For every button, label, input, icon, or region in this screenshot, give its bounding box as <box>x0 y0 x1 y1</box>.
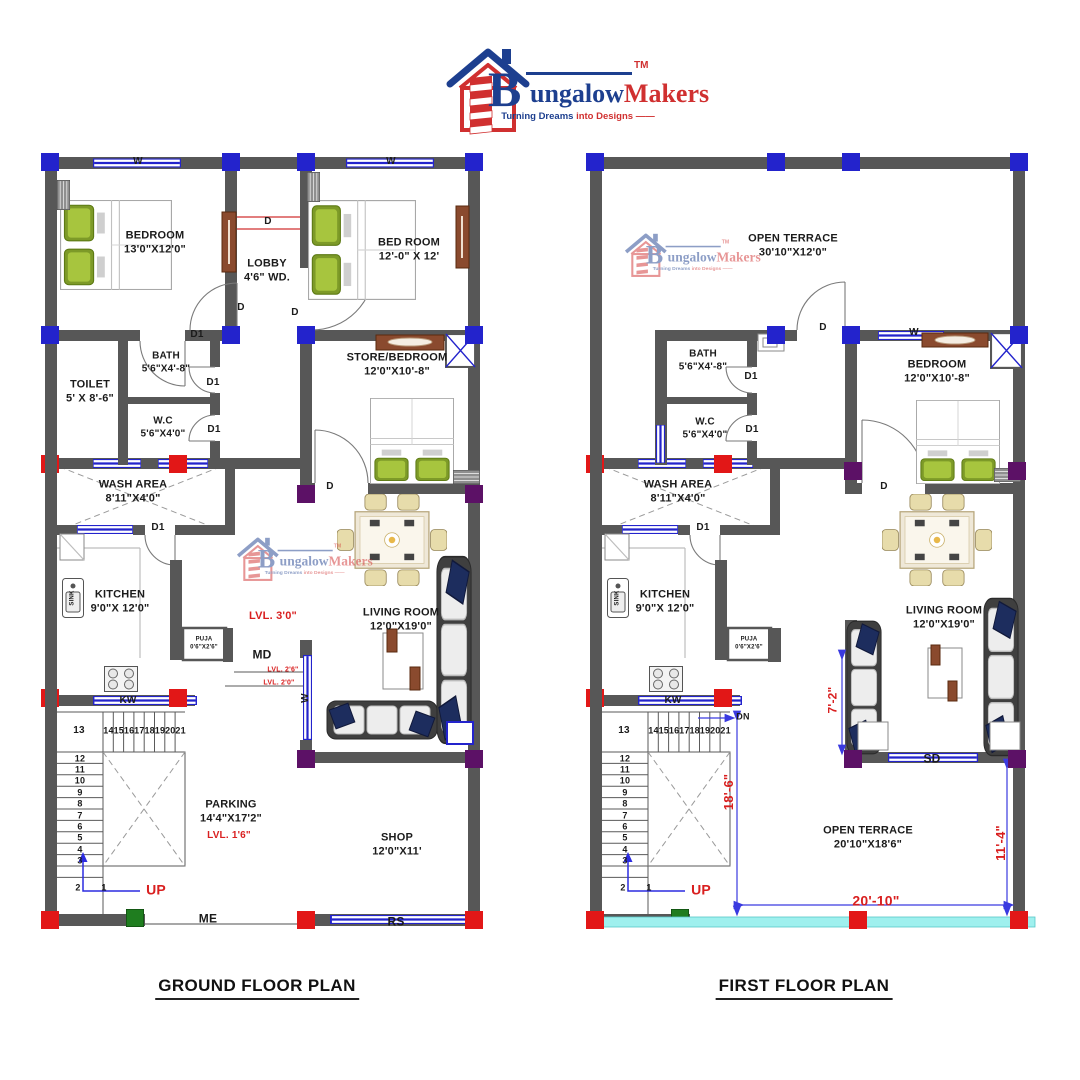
brand-logo: B TM ungalowMakers Turning Dreams into D… <box>446 34 661 139</box>
stair-number: 10 <box>75 776 85 787</box>
stair-number: 12 <box>75 753 85 764</box>
stair-number: 5 <box>622 833 627 844</box>
first-dining-set <box>882 494 992 586</box>
stair-number: 14 <box>103 725 113 736</box>
stair-number: 19 <box>155 725 165 736</box>
stair-number: 1 <box>101 882 106 893</box>
plan-label: MD <box>252 648 271 663</box>
ground-toilet-label: TOILET 5' X 8'-6" <box>66 378 114 406</box>
plan-label: KW <box>119 695 136 708</box>
brand-wordmark: ungalowMakers <box>530 79 709 109</box>
plan-label: UP <box>691 881 711 899</box>
plan-label: LVL. 2'0" <box>263 680 294 689</box>
ground-wash-label: WASH AREA 8'11"X4'0" <box>99 478 168 506</box>
floor-plan-page: WWBEDROOM 13'0"X12'0"DLOBBY 4'6" WD.BED … <box>0 0 1080 1080</box>
stair-number: 3 <box>77 855 82 866</box>
plan-label: D1 <box>206 377 219 390</box>
plan-label: D1 <box>696 522 709 535</box>
first-bath-label: BATH 5'6"X4'-8" <box>679 349 727 374</box>
brand-tm: TM <box>634 60 648 71</box>
plan-label: DN <box>736 711 749 722</box>
first-bedroom-bed <box>916 400 1000 483</box>
ground-store-bed <box>370 398 454 483</box>
stair-number: 9 <box>77 787 82 798</box>
ground-sofa-bottom <box>327 701 437 739</box>
floor-plan-canvas <box>0 0 1080 1080</box>
brand-initial: B <box>488 60 521 118</box>
stair-number: 18 <box>144 725 154 736</box>
stair-number: 11 <box>75 764 85 775</box>
stair-number: 2 <box>620 882 625 893</box>
plan-label: W <box>300 693 313 703</box>
first-bedroom-label: BEDROOM 12'0"X10'-8" <box>904 358 970 386</box>
plan-label: 7'-2" <box>826 687 841 714</box>
stair-number: 16 <box>124 725 134 736</box>
plan-label: D1 <box>744 371 757 384</box>
stair-number: 17 <box>679 725 689 736</box>
stair-number: 12 <box>620 753 630 764</box>
plan-label: D1 <box>190 329 203 342</box>
stair-number: 15 <box>114 725 124 736</box>
plan-label: D <box>237 302 244 315</box>
stair-number: 4 <box>622 844 627 855</box>
stair-number: 11 <box>620 764 630 775</box>
stair-number: 21 <box>175 725 185 736</box>
ground-sofa-right <box>437 557 471 744</box>
ground-living-label: LIVING ROOM 12'0"X19'0" <box>363 606 439 634</box>
stair-number: 20 <box>165 725 175 736</box>
plan-label: 11'-4" <box>993 825 1009 861</box>
plan-label: W <box>386 156 396 169</box>
ground-shop-label: SHOP 12'0"X11' <box>372 831 422 859</box>
plan-label: D <box>264 216 271 229</box>
stair-number: 8 <box>622 798 627 809</box>
stair-number: 13 <box>73 725 85 738</box>
ground-parking-label: PARKING 14'4"X17'2" <box>200 798 262 826</box>
plan-label: D1 <box>745 424 758 437</box>
ground-bedroom-label: BEDROOM 13'0"X12'0" <box>124 229 186 257</box>
ground-lobby-label: LOBBY 4'6" WD. <box>244 257 290 285</box>
stair-number: 17 <box>134 725 144 736</box>
first-living-label: LIVING ROOM 12'0"X19'0" <box>906 604 982 632</box>
first-terrace-bottom-label: OPEN TERRACE 20'10"X18'6" <box>823 824 913 852</box>
plan-label: LVL. 3'0" <box>249 610 297 624</box>
stair-number: 21 <box>720 725 730 736</box>
plan-label: D <box>326 481 333 494</box>
plan-label: D1 <box>207 424 220 437</box>
plan-label: D <box>819 322 826 335</box>
plan-label: D <box>880 481 887 494</box>
watermark-logo-first: B TM ungalowMakers Turning Dreams into D… <box>624 226 736 281</box>
stair-number: 16 <box>669 725 679 736</box>
stair-number: 5 <box>77 833 82 844</box>
plan-label: KW <box>664 695 681 708</box>
plan-label: UP <box>146 881 166 899</box>
stair-number: 14 <box>648 725 658 736</box>
stair-number: 4 <box>77 844 82 855</box>
stair-number: 19 <box>700 725 710 736</box>
stair-number: 1 <box>646 882 651 893</box>
plan-label: 18'-6" <box>721 774 737 810</box>
stair-number: 8 <box>77 798 82 809</box>
plan-label: W <box>133 156 143 169</box>
plan-label: SINK <box>69 590 77 605</box>
stair-number: 10 <box>620 776 630 787</box>
ground-wc-label: W.C 5'6"X4'0" <box>141 416 186 441</box>
stair-number: 2 <box>75 882 80 893</box>
stair-number: 6 <box>77 821 82 832</box>
watermark-logo-ground: B TM ungalowMakers Turning Dreams into D… <box>236 530 348 585</box>
stair-number: 20 <box>710 725 720 736</box>
stair-number: 6 <box>622 821 627 832</box>
plan-label: LVL. 2'6" <box>267 667 298 676</box>
ground-floor-title: GROUND FLOOR PLAN <box>155 976 359 1000</box>
ground-kitchen-label: KITCHEN 9'0"X 12'0" <box>91 588 150 616</box>
ground-dining-set <box>337 494 447 586</box>
plan-label: SD <box>923 752 940 767</box>
plan-label: PUJA 0'6"X2'6" <box>190 637 218 652</box>
plan-label: 20'-10" <box>852 892 899 910</box>
first-terrace-parapet <box>602 917 1035 927</box>
plan-label: LVL. 1'6" <box>207 830 251 843</box>
plan-label: ME <box>199 912 217 927</box>
stair-number: 3 <box>622 855 627 866</box>
stair-number: 7 <box>77 810 82 821</box>
first-terrace-top-label: OPEN TERRACE 30'10"X12'0" <box>748 232 838 260</box>
plan-label: D1 <box>151 522 164 535</box>
brand-tagline: Turning Dreams into Designs —— <box>498 111 658 122</box>
first-wc-label: W.C 5'6"X4'0" <box>683 417 728 442</box>
ground-bath-label: BATH 5'6"X4'-8" <box>142 351 190 376</box>
plan-label: D <box>291 307 298 320</box>
plan-label: PUJA 0'6"X2'6" <box>735 637 763 652</box>
plan-label: SINK <box>614 590 622 605</box>
first-wash-label: WASH AREA 8'11"X4'0" <box>644 478 713 506</box>
stair-number: 7 <box>622 810 627 821</box>
stair-number: 15 <box>659 725 669 736</box>
stair-number: 9 <box>622 787 627 798</box>
first-kitchen-label: KITCHEN 9'0"X 12'0" <box>636 588 695 616</box>
stair-number: 18 <box>689 725 699 736</box>
plan-label: W <box>909 327 919 340</box>
stair-number: 13 <box>618 725 630 738</box>
first-floor-title: FIRST FLOOR PLAN <box>716 976 893 1000</box>
logo-rule <box>526 72 632 75</box>
ground-store-label: STORE/BEDROOM 12'0"X10'-8" <box>347 351 448 379</box>
plan-label: RS <box>387 915 404 930</box>
ground-bedroom2-label: BED ROOM 12'-0" X 12' <box>378 236 440 264</box>
